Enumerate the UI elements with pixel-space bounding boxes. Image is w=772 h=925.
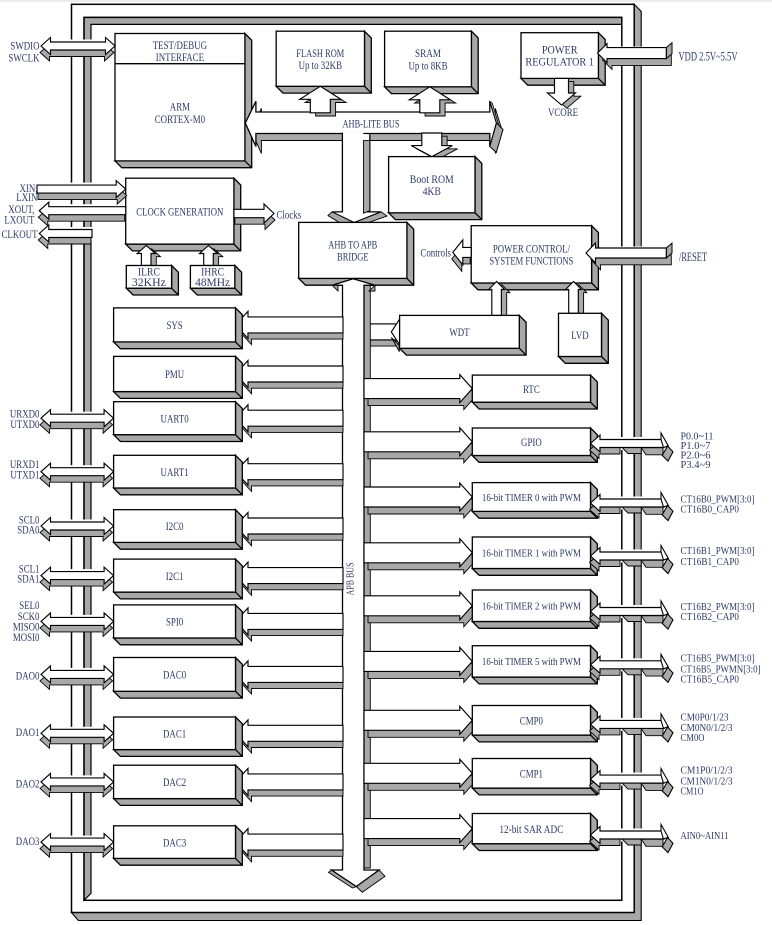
svg-text:32KHz: 32KHz — [132, 277, 166, 289]
svg-text:INTERFACE: INTERFACE — [156, 50, 204, 64]
svg-text:REGULATOR 1: REGULATOR 1 — [525, 57, 594, 69]
svg-text:DAC2: DAC2 — [163, 775, 186, 789]
svg-text:AHB-LITE BUS: AHB-LITE BUS — [343, 117, 400, 131]
svg-text:DAC1: DAC1 — [163, 727, 186, 741]
svg-text:16-bit TIMER 0 with PWM: 16-bit TIMER 0 with PWM — [482, 492, 581, 504]
svg-text:CT16B2_CAP0: CT16B2_CAP0 — [681, 612, 740, 623]
svg-text:I2C1: I2C1 — [166, 569, 184, 583]
svg-text:SYSTEM FUNCTIONS: SYSTEM FUNCTIONS — [489, 256, 573, 268]
svg-text:SWCLK: SWCLK — [8, 51, 39, 65]
svg-text:POWER: POWER — [542, 45, 578, 57]
svg-text:RTC: RTC — [523, 382, 540, 396]
svg-text:POWER CONTROL/: POWER CONTROL/ — [493, 243, 571, 255]
svg-text:DAO1: DAO1 — [16, 725, 40, 739]
svg-text:LXOUT: LXOUT — [4, 212, 35, 226]
svg-text:I2C0: I2C0 — [166, 519, 184, 533]
svg-text:CMP0: CMP0 — [520, 714, 543, 728]
svg-text:LVD: LVD — [571, 328, 589, 342]
svg-text:CORTEX-M0: CORTEX-M0 — [155, 112, 205, 126]
svg-text:UTXD0: UTXD0 — [10, 417, 39, 431]
svg-text:DAO3: DAO3 — [16, 834, 40, 848]
svg-text:PMU: PMU — [165, 367, 184, 381]
svg-text:P3.4~9: P3.4~9 — [681, 460, 711, 471]
svg-text:CLOCK GENERATION: CLOCK GENERATION — [136, 204, 223, 218]
svg-text:CT16B5_PWM[3:0]: CT16B5_PWM[3:0] — [681, 653, 755, 664]
svg-text:WDT: WDT — [449, 325, 470, 339]
svg-text:48MHz: 48MHz — [195, 277, 230, 289]
svg-text:DAC3: DAC3 — [163, 835, 186, 849]
svg-text:APB BUS: APB BUS — [345, 563, 357, 596]
svg-text:CMP1: CMP1 — [520, 767, 543, 781]
svg-text:/RESET: /RESET — [679, 250, 707, 264]
svg-text:UART0: UART0 — [161, 411, 189, 425]
svg-text:16-bit TIMER 2 with PWM: 16-bit TIMER 2 with PWM — [482, 601, 581, 613]
svg-text:16-bit TIMER 5 with PWM: 16-bit TIMER 5 with PWM — [482, 656, 581, 668]
svg-text:CM0P0/1/23: CM0P0/1/23 — [681, 712, 729, 723]
svg-text:CM0O: CM0O — [681, 733, 705, 744]
svg-text:4KB: 4KB — [423, 184, 441, 198]
svg-text:12-bit SAR ADC: 12-bit SAR ADC — [499, 822, 563, 836]
svg-text:Up to 8KB: Up to 8KB — [409, 58, 448, 72]
svg-text:MOSI0: MOSI0 — [13, 630, 40, 644]
svg-text:Controls: Controls — [420, 246, 451, 260]
svg-text:CM1P0/1/2/3: CM1P0/1/2/3 — [681, 765, 733, 776]
svg-text:AIN0~AIN11: AIN0~AIN11 — [681, 831, 729, 842]
svg-text:VCORE: VCORE — [548, 105, 578, 119]
svg-text:CT16B1_PWM[3:0]: CT16B1_PWM[3:0] — [681, 546, 755, 557]
svg-text:GPIO: GPIO — [521, 435, 542, 449]
svg-text:Up to 32KB: Up to 32KB — [299, 58, 342, 72]
svg-text:DAO0: DAO0 — [16, 668, 40, 682]
svg-text:DAO2: DAO2 — [16, 777, 40, 791]
svg-text:CT16B5_CAP0: CT16B5_CAP0 — [681, 675, 740, 686]
svg-text:16-bit TIMER 1 with PWM: 16-bit TIMER 1 with PWM — [482, 548, 581, 560]
svg-text:CT16B0_CAP0: CT16B0_CAP0 — [681, 505, 740, 516]
svg-text:Clocks: Clocks — [277, 208, 302, 222]
svg-text:DAC0: DAC0 — [163, 668, 186, 682]
svg-text:CLKOUT: CLKOUT — [2, 227, 38, 241]
svg-text:SDA0: SDA0 — [17, 523, 39, 537]
svg-text:SPI0: SPI0 — [166, 615, 183, 629]
svg-text:CT16B1_CAP0: CT16B1_CAP0 — [681, 557, 740, 568]
svg-text:SYS: SYS — [166, 318, 182, 332]
svg-text:UTXD1: UTXD1 — [10, 468, 39, 482]
svg-text:SDA1: SDA1 — [17, 572, 39, 586]
svg-text:BRIDGE: BRIDGE — [337, 250, 369, 264]
svg-text:CM1O: CM1O — [681, 787, 704, 798]
svg-text:UART1: UART1 — [161, 465, 189, 479]
svg-text:VDD 2.5V~5.5V: VDD 2.5V~5.5V — [679, 50, 738, 64]
